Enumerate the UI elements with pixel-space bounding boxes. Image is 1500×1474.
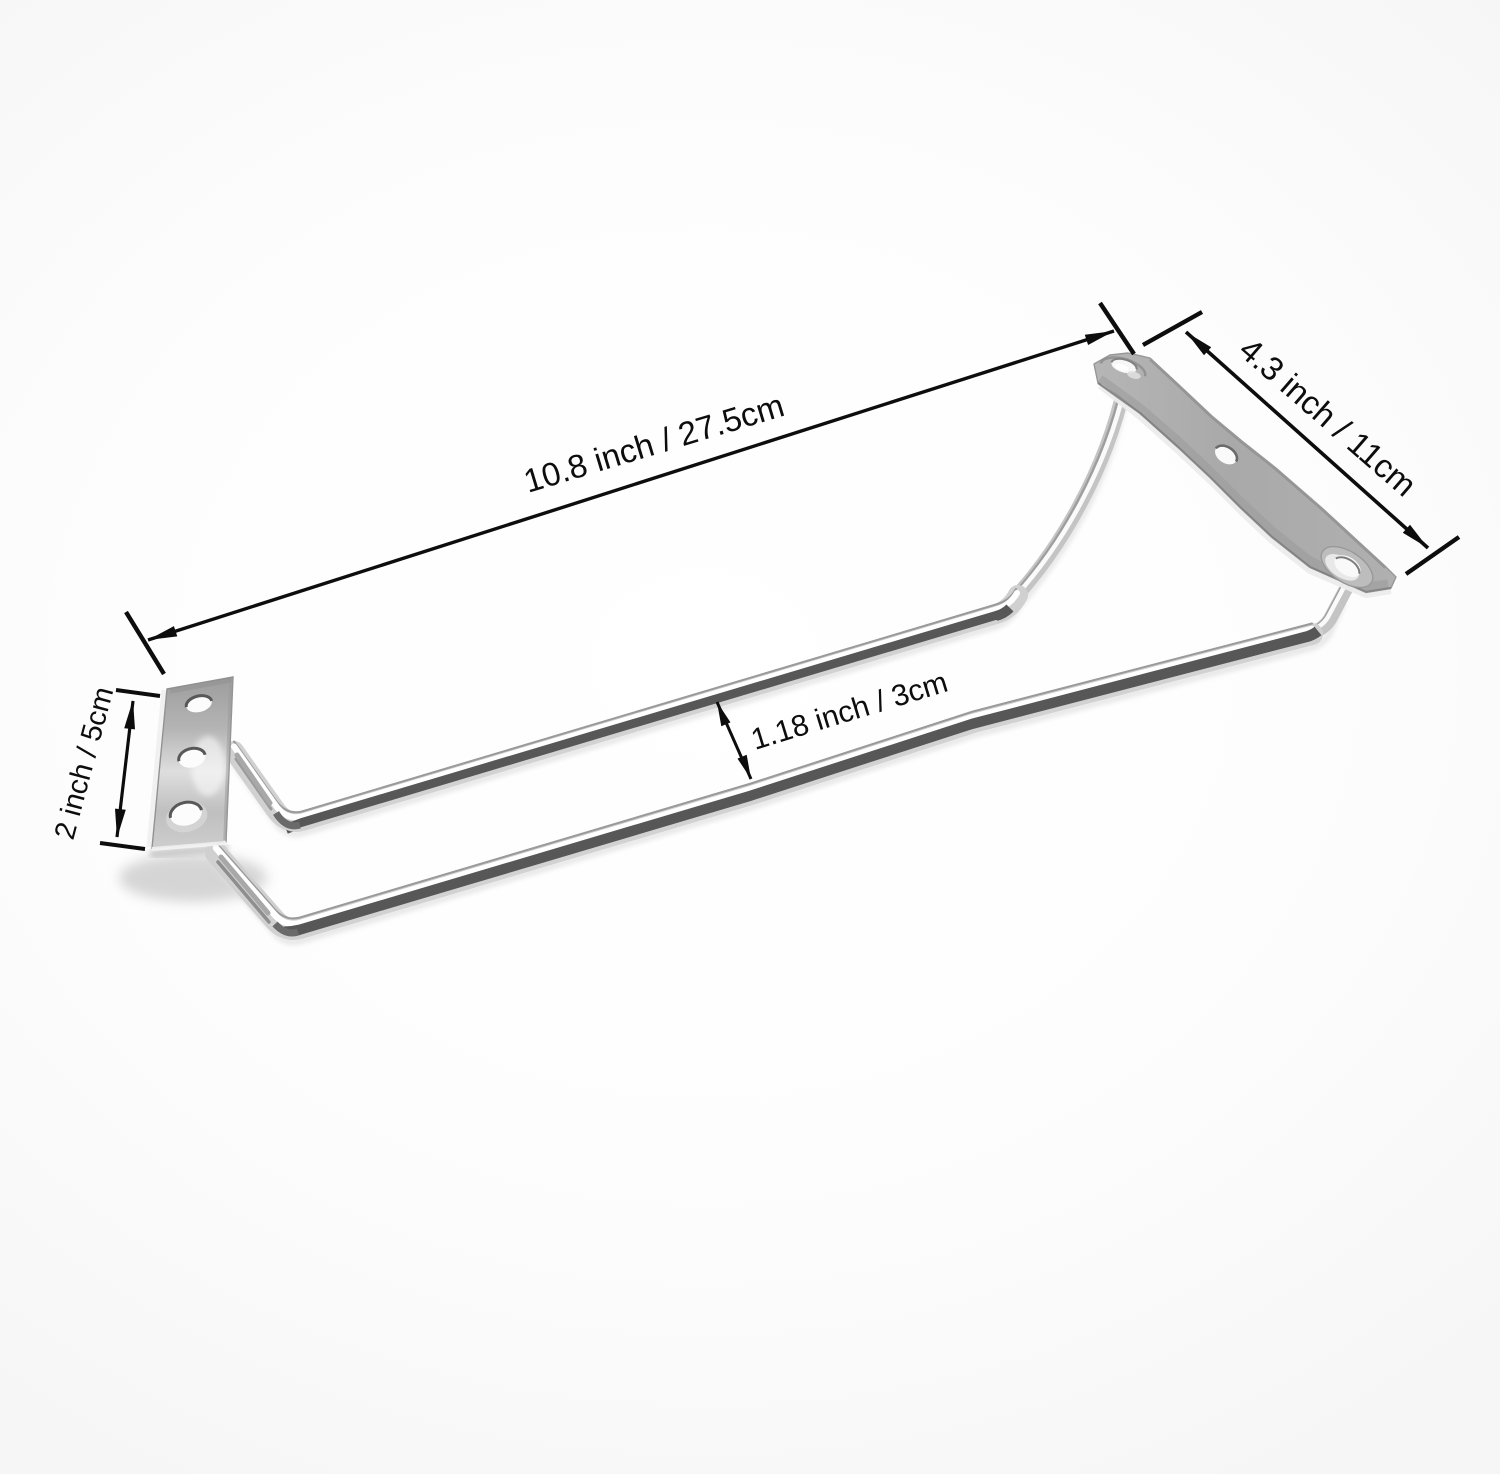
svg-text:10.8 inch / 27.5cm: 10.8 inch / 27.5cm [519,386,788,499]
svg-text:2 inch / 5cm: 2 inch / 5cm [49,684,120,843]
